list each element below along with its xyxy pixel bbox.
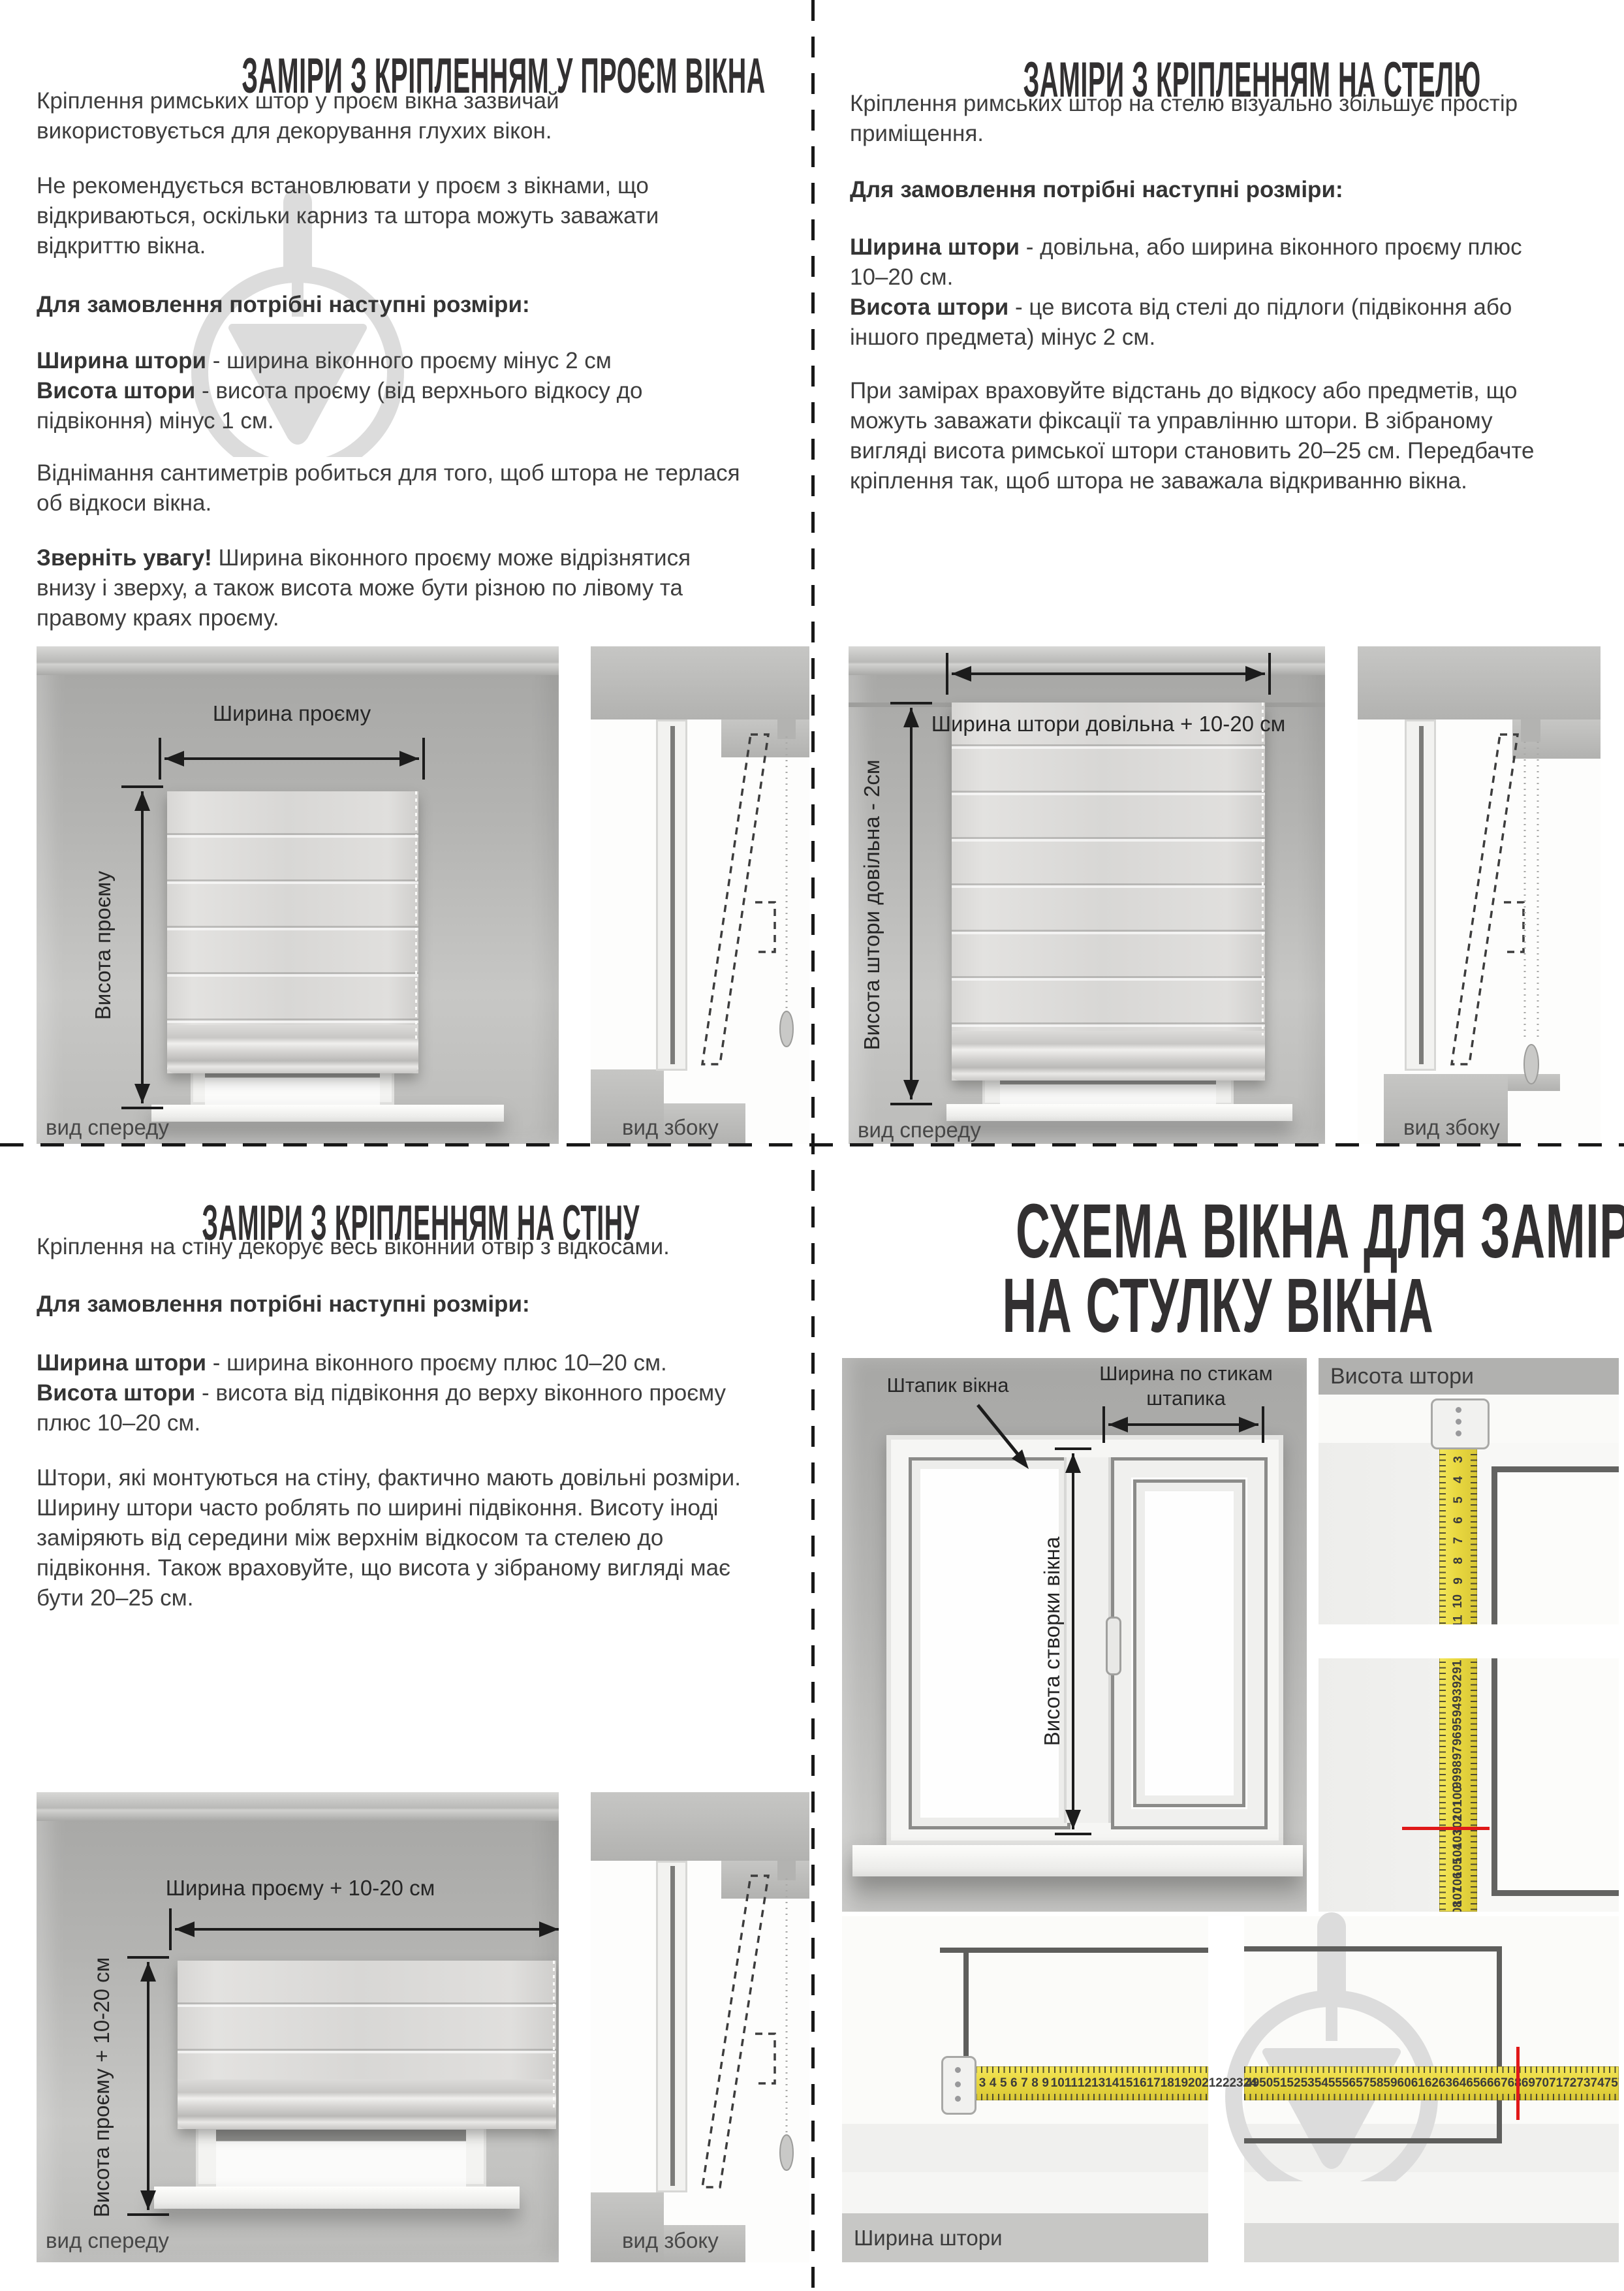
tape-number: 64 [1452,2076,1466,2091]
dimension-tick [890,1103,932,1105]
tape-number: 75 [1604,2076,1618,2091]
tape-number: 108 [1451,1901,1465,1912]
figure-side-view: вид збоку [591,1792,809,2262]
tape-number: 5 [998,2076,1008,2091]
figure-side-view: вид збоку [1358,646,1601,1144]
paragraph: Не рекомендується встановлювати у проєм … [37,171,745,261]
tape-number: 71 [1549,2076,1563,2091]
tape-number: 13 [1091,2076,1105,2091]
tape-number: 57 [1356,2076,1369,2091]
tape-numbers-top: 34567891011 [1439,1449,1477,1632]
bead-width-label-line1: Ширина по стикам [1099,1362,1273,1385]
tape-numbers-bottom: 9192939495969798991001011021031041051061… [1439,1660,1477,1912]
tape-number: 69 [1522,2076,1535,2091]
tape-metal-tip [1431,1398,1490,1449]
tape-number: 91 [1451,1660,1465,1673]
sash-height-dimension-arrow [1072,1453,1074,1829]
tape-number: 16 [1132,2076,1146,2091]
tape-number: 55 [1328,2076,1342,2091]
tape-number: 9 [1448,1577,1468,1585]
height-dimension-arrow [147,1962,149,2210]
roman-shade [952,703,1265,1081]
dimension-tick [169,1908,172,1950]
caption-band: Ширина штори [842,2213,1208,2262]
tape-number: 20 [1188,2076,1202,2091]
tape-number: 8 [1029,2076,1040,2091]
height-label: Висота проєму + 10-20 см [89,1957,114,2218]
caption-side-view: вид збоку [1403,1115,1500,1140]
tape-number: 3 [1448,1456,1468,1463]
definition: - ширина віконного проєму мінус 2 см [206,348,612,373]
figure-front-view: Ширина штори довільна + 10-20 см Висота … [849,646,1325,1144]
height-dimension-arrow [910,708,913,1099]
width-dimension-arrow [952,672,1265,675]
tape-number: 21 [1202,2076,1215,2091]
frame-edge-line [1497,1946,1502,2143]
dimension-tick [121,1107,163,1109]
dimension-tick [422,738,425,780]
tape-number: 74 [1591,2076,1604,2091]
tape-numbers-left: 3456789101112131415161718192021222324 [977,2066,1208,2100]
tape-number: 76 [1618,2076,1619,2091]
tape-number: 7 [1448,1537,1468,1544]
window-handle [1106,1617,1121,1675]
tape-number: 66 [1480,2076,1493,2091]
tape-number: 5 [1448,1496,1468,1504]
tape-number: 61 [1411,2076,1425,2091]
bead-label: Штапик вікна [886,1374,1008,1397]
section-opening-mount: ЗАМІРИ З КРІПЛЕННЯМ У ПРОЄМ ВІКНА Кріпле… [0,0,812,1145]
tape-number: 3 [977,2076,988,2091]
tip-rivet [955,2081,961,2087]
tape-number: 6 [1448,1517,1468,1524]
height-measuring-panel: Висота штори 34567891011 919293949596979… [1319,1358,1619,1912]
tape-number: 65 [1466,2076,1480,2091]
window-sill [946,1104,1292,1121]
paragraph: При замірах враховуйте відстань до відко… [850,376,1558,496]
tape-number: 11 [1065,2076,1078,2091]
height-dimension-arrow [141,791,144,1103]
tape-number: 50 [1259,2076,1273,2091]
width-dimension-arrow [164,757,419,760]
dimension-tick [946,653,948,695]
window-glass [1000,1079,1216,1105]
red-measure-mark [1402,1827,1490,1830]
tape-number: 94 [1451,1703,1465,1716]
dimension-tick [1102,1406,1105,1443]
red-measure-mark [1516,2047,1520,2120]
tape-number: 22 [1215,2076,1229,2091]
height-label: Висота штори довільна - 2см [860,759,884,1050]
tape-number: 19 [1174,2076,1188,2091]
figure-front-view: Ширина проєму Висота проєму вид спереду [37,646,559,1144]
shade-chain [415,791,417,1039]
tape-number: 23 [1229,2076,1243,2091]
term: Висота штори [37,378,195,403]
tape-number: 63 [1439,2076,1452,2091]
roman-shade [167,791,418,1073]
roman-shade [178,1961,556,2129]
order-heading: Для замовлення потрібні наступні розміри… [850,175,1558,205]
tape-number: 58 [1369,2076,1383,2091]
dimension-tick [890,702,932,704]
window-sill [852,1845,1303,1876]
tape-number: 53 [1301,2076,1315,2091]
caption-side-view: вид збоку [622,1115,719,1140]
definition-width: Ширина штори - довільна, або ширина віко… [850,232,1558,292]
dimension-tick [1268,653,1271,695]
tape-number: 4 [988,2076,998,2091]
width-dimension-arrow [175,1928,559,1931]
shade-folds [167,1025,418,1073]
shade-folds [178,2079,556,2129]
definition-width: Ширина штори - ширина віконного проєму п… [37,1348,745,1378]
tape-number: 52 [1287,2076,1300,2091]
tip-rivet [1456,1419,1461,1425]
term: Висота штори [37,1380,195,1406]
dimension-tick [127,1956,169,1959]
tape-number: 9 [1040,2076,1051,2091]
dimension-tick [127,2213,169,2216]
dimension-tick [159,738,161,780]
mullion [1064,1457,1111,1823]
paragraph: Кріплення римських штор на стелю візуаль… [850,89,1558,149]
tape-number: 7 [1019,2076,1029,2091]
definition-width: Ширина штори - ширина віконного проєму м… [37,346,745,376]
dimension-tick [1055,1447,1091,1450]
term: Ширина штори [850,234,1020,260]
figure-front-view: Ширина проєму + 10-20 см Висота проєму +… [37,1792,559,2262]
frame-edge-line [1244,1946,1502,1951]
paragraph: Віднімання сантиметрів робиться для того… [37,458,745,518]
tape-number: 73 [1576,2076,1590,2091]
width-label: Ширина штори довільна + 10-20 см [931,712,1286,736]
caption-front-view: вид спереду [46,1115,169,1140]
order-heading: Для замовлення потрібні наступні розміри… [37,290,745,320]
horizontal-divider-dashed [0,1143,1624,1146]
tip-rivet [955,2067,961,2073]
width-caption: Ширина штори [854,2226,1003,2251]
definition: - ширина віконного проєму плюс 10–20 см. [206,1350,667,1376]
tilted-sash-dashed [1358,646,1601,1144]
tape-number: 67 [1494,2076,1508,2091]
tape-number: 49 [1245,2076,1259,2091]
bead-width-dimension-arrow [1108,1423,1258,1426]
definition-height: Висота штори - висота від підвіконня до … [37,1378,745,1438]
paragraph: Кріплення римських штор у проєм вікна за… [37,86,745,146]
section-body-text: Кріплення римських штор на стелю візуаль… [850,89,1558,496]
frame-edge-line [1244,2138,1499,2143]
tape-number: 10 [1448,1594,1468,1608]
window-sill [154,2187,520,2209]
shade-chain [1262,703,1264,1035]
term: Ширина штори [37,348,206,373]
caption-front-view: вид спереду [858,1118,981,1143]
tape-number: 92 [1451,1674,1465,1688]
window-sill [151,1105,504,1122]
dimension-tick [1055,1833,1091,1835]
tape-number: 18 [1161,2076,1174,2091]
window-glass [205,1071,380,1105]
tape-number: 17 [1147,2076,1161,2091]
tape-number: 10 [1051,2076,1065,2091]
tape-number: 51 [1273,2076,1287,2091]
tape-number: 56 [1342,2076,1356,2091]
definition-height: Висота штори - це висота від стелі до пі… [850,292,1558,353]
note-term: Зверніть увагу! [37,545,212,571]
caption-front-view: вид спереду [46,2228,169,2253]
tape-number: 6 [1008,2076,1019,2091]
tape-number: 8 [1448,1557,1468,1564]
shade-chain [553,1961,555,2109]
tape-number: 59 [1383,2076,1397,2091]
window-corner-frame [1491,1466,1619,1896]
section-wall-mount: ЗАМІРИ З КРІПЛЕННЯМ НА СТІНУ Кріплення н… [0,1145,812,2291]
scheme-title-line2: НА СТУЛКУ ВІКНА [812,1261,1624,1350]
width-label: Ширина проєму + 10-20 см [166,1876,435,1901]
tip-rivet [1456,1407,1461,1413]
panel-header: Висота штори [1319,1358,1619,1395]
paragraph: Кріплення на стіну декорує весь віконний… [37,1232,745,1262]
dimension-tick [1262,1406,1264,1443]
height-label: Висота проєму [91,871,116,1020]
order-heading: Для замовлення потрібні наступні розміри… [37,1289,745,1319]
section-sash-scheme: СХЕМА ВІКНА ДЛЯ ЗАМІРІВ НА СТУЛКУ ВІКНА … [812,1145,1624,2291]
width-label: Ширина проєму [213,701,371,726]
dimension-tick [121,785,163,788]
section-ceiling-mount: ЗАМІРИ З КРІПЛЕННЯМ НА СТЕЛЮ Кріплення р… [812,0,1624,1145]
tape-number: 95 [1451,1717,1465,1731]
height-caption: Висота штори [1330,1364,1474,1389]
tape-number: 14 [1105,2076,1119,2091]
crown-molding [37,646,559,675]
tip-rivet [955,2096,961,2102]
definition-height: Висота штори - висота проєму (від верхнь… [37,376,745,436]
term: Висота штори [850,294,1008,320]
tape-number: 62 [1425,2076,1439,2091]
section-body-text: Кріплення на стіну декорує весь віконний… [37,1232,745,1613]
right-sash-glass [1133,1479,1245,1807]
window-glass [216,2130,466,2187]
window-diagram: Штапик вікна Ширина по стикам штапика Ви… [842,1358,1307,1912]
leaflet-page: ЗАМІРИ З КРІПЛЕННЯМ У ПРОЄМ ВІКНА Кріпле… [0,0,1624,2291]
caption-side-view: вид збоку [622,2228,719,2253]
tape-number: 12 [1078,2076,1091,2091]
crown-molding [37,1792,559,1821]
tilted-sash-dashed [591,1792,809,2262]
scheme-title-text: НА СТУЛКУ ВІКНА [1003,1261,1434,1350]
tape-number: 54 [1315,2076,1328,2091]
tape-number: 93 [1451,1688,1465,1702]
shade-folds [952,1031,1265,1081]
tape-number: 70 [1535,2076,1549,2091]
tape-metal-tip [941,2056,976,2115]
tip-rivet [1456,1430,1461,1436]
frame-edge-line [940,1948,1208,1953]
tilted-sash-dashed [591,646,809,1144]
tape-number: 97 [1451,1746,1465,1760]
frame-edge-line [963,1948,969,2066]
figure-side-view: вид збоку [591,646,809,1144]
note-paragraph: Зверніть увагу! Ширина віконного проєму … [37,543,745,633]
tape-number: 15 [1119,2076,1132,2091]
bead-width-label-line2: штапика [1146,1387,1226,1410]
tape-number: 4 [1448,1476,1468,1483]
term: Ширина штори [37,1350,206,1376]
tape-numbers-right: 4950515253545556575859606162636465666768… [1245,2066,1598,2100]
photo-splice-gap [1319,1624,1619,1658]
tape-number: 72 [1563,2076,1576,2091]
tape-number: 98 [1451,1760,1465,1774]
section-body-text: Кріплення римських штор у проєм вікна за… [37,86,745,633]
paragraph: Штори, які монтуються на стіну, фактично… [37,1463,745,1613]
tape-number: 96 [1451,1731,1465,1745]
sill-band [1244,2223,1619,2262]
tape-number: 60 [1398,2076,1411,2091]
sash-height-label: Висота створки вікна [1040,1537,1065,1746]
bead-pointer-arrow [973,1401,1044,1479]
